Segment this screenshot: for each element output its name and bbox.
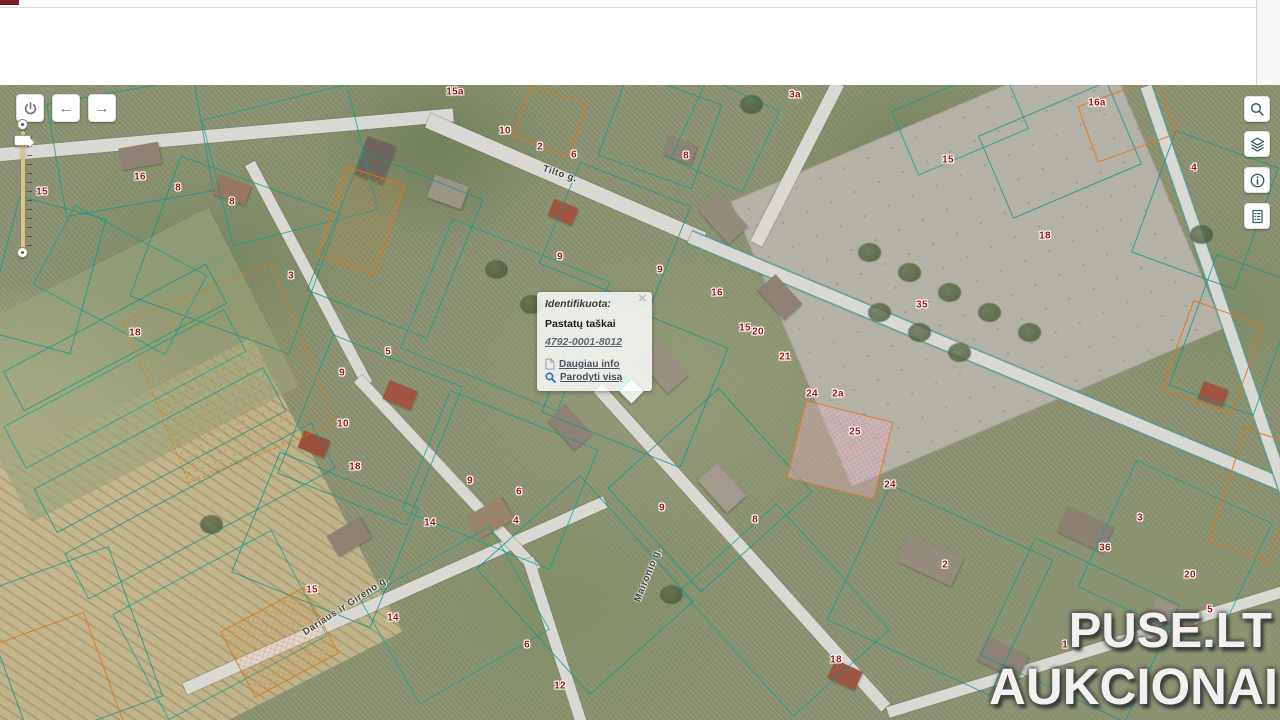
parcel-number: 21	[779, 352, 791, 363]
parcel-number: 15a	[446, 87, 464, 98]
show-all-row: Parodyti visą	[545, 372, 644, 383]
layers-icon	[1250, 137, 1265, 152]
zoom-slider-knob[interactable]	[14, 135, 31, 146]
search-button[interactable]	[1244, 96, 1270, 122]
tree	[948, 343, 971, 362]
legend-icon	[1250, 209, 1265, 224]
browser-top-band	[0, 0, 1280, 85]
tree	[938, 283, 961, 302]
parcel-number: 3a	[789, 90, 801, 101]
top-divider	[0, 7, 1280, 8]
legend-button[interactable]	[1244, 203, 1270, 229]
power-icon	[23, 101, 38, 116]
tree	[898, 263, 921, 282]
parcel-number: 6	[571, 150, 577, 161]
zoom-slider-ticks	[27, 137, 32, 249]
info-icon	[1250, 173, 1265, 188]
more-info-row: Daugiau info	[545, 358, 644, 370]
back-button[interactable]: ←	[52, 94, 80, 122]
geoportal-page: 15a102683a1516a4183516881539916152021242…	[0, 0, 1280, 720]
parcel-number: 20	[752, 327, 764, 338]
scrollbar-track[interactable]	[1256, 0, 1280, 85]
identify-popup: ✕ Identifikuota: Pastatų taškai 4792-000…	[537, 292, 652, 391]
search-icon	[1250, 102, 1264, 116]
zoom-slider-track[interactable]	[21, 131, 25, 255]
zoom-in-cap[interactable]	[17, 119, 28, 130]
power-button[interactable]	[16, 94, 44, 122]
popup-title: Identifikuota:	[545, 298, 644, 310]
info-button[interactable]	[1244, 167, 1270, 193]
parcel-number: 10	[499, 126, 511, 137]
forward-button[interactable]: →	[88, 94, 116, 122]
tree	[868, 303, 891, 322]
more-info-link[interactable]: Daugiau info	[559, 359, 620, 370]
tree	[908, 323, 931, 342]
parcel-number: 15	[739, 323, 751, 334]
parcel-number: 15	[36, 187, 48, 198]
parcel-boundary-orange	[512, 85, 587, 157]
map-viewport[interactable]: 15a102683a1516a4183516881539916152021242…	[0, 85, 1280, 720]
tree	[1018, 323, 1041, 342]
tree	[858, 243, 881, 262]
magnifier-icon	[545, 372, 556, 383]
show-all-link[interactable]: Parodyti visą	[560, 372, 622, 383]
document-icon	[545, 358, 555, 370]
close-icon[interactable]: ✕	[638, 294, 647, 305]
parcel-number: 16	[711, 288, 723, 299]
forward-arrow-icon: →	[95, 100, 110, 117]
object-code-link[interactable]: 4792-0001-8012	[545, 336, 622, 348]
zoom-out-cap[interactable]	[17, 247, 28, 258]
parcel-boundary-orange	[1208, 428, 1280, 562]
popup-layer-name: Pastatų taškai	[545, 318, 644, 330]
back-arrow-icon: ←	[59, 100, 74, 117]
tree	[978, 303, 1001, 322]
browser-corner-chip	[0, 0, 19, 5]
layers-button[interactable]	[1244, 131, 1270, 157]
